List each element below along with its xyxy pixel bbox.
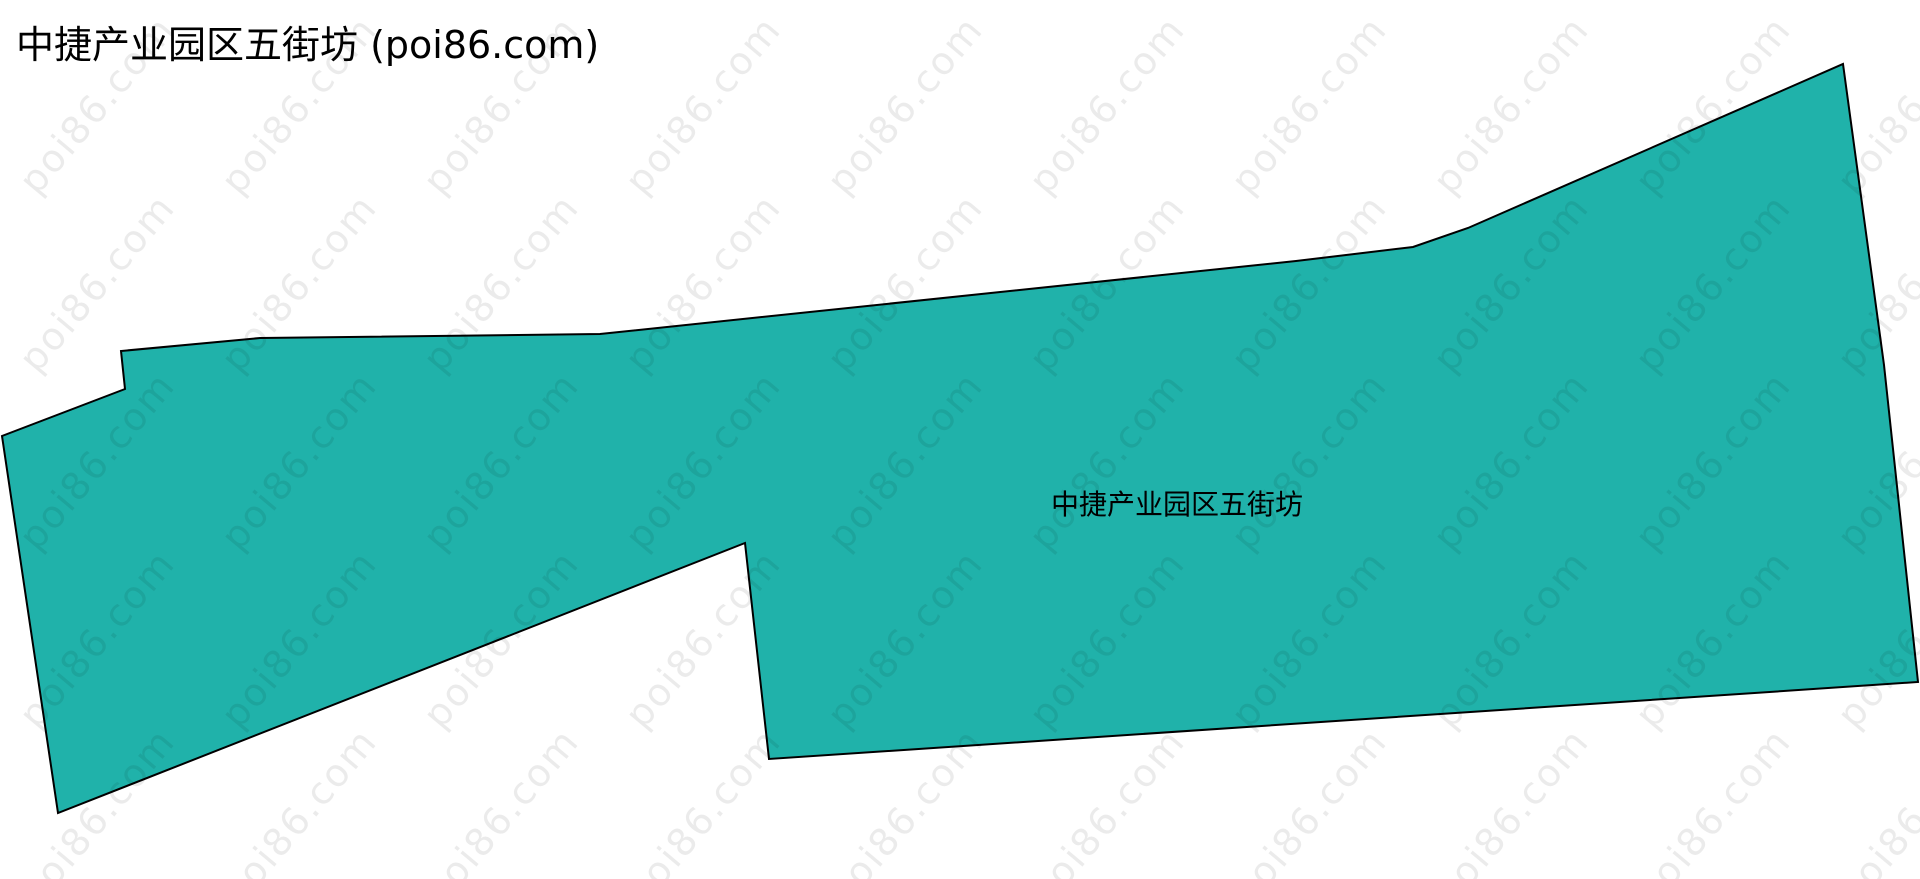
region-label: 中捷产业园区五街坊 [1051, 483, 1303, 523]
map-canvas: poi86.compoi86.compoi86.compoi86.compoi8… [0, 0, 1920, 879]
region-polygon [2, 64, 1918, 813]
page-title: 中捷产业园区五街坊 (poi86.com) [16, 14, 599, 69]
region-polygon-svg [0, 0, 1920, 879]
